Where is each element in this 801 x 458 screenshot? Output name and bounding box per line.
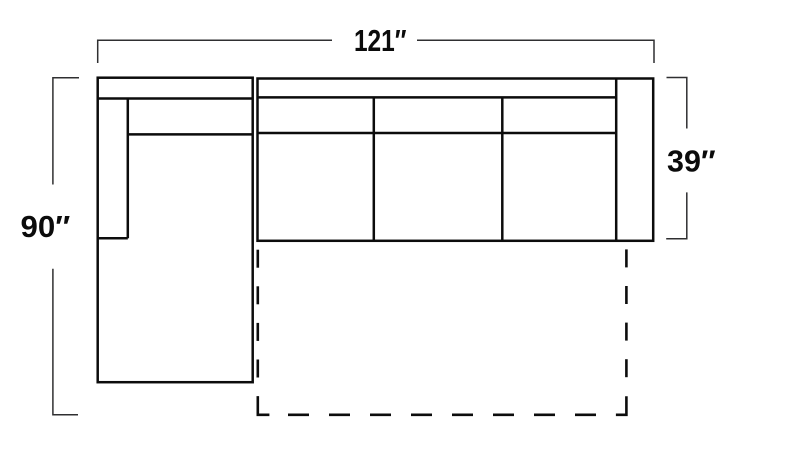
svg-text:121″: 121″ [354,24,407,58]
svg-text:90″: 90″ [21,210,71,244]
svg-text:39″: 39″ [667,144,716,178]
